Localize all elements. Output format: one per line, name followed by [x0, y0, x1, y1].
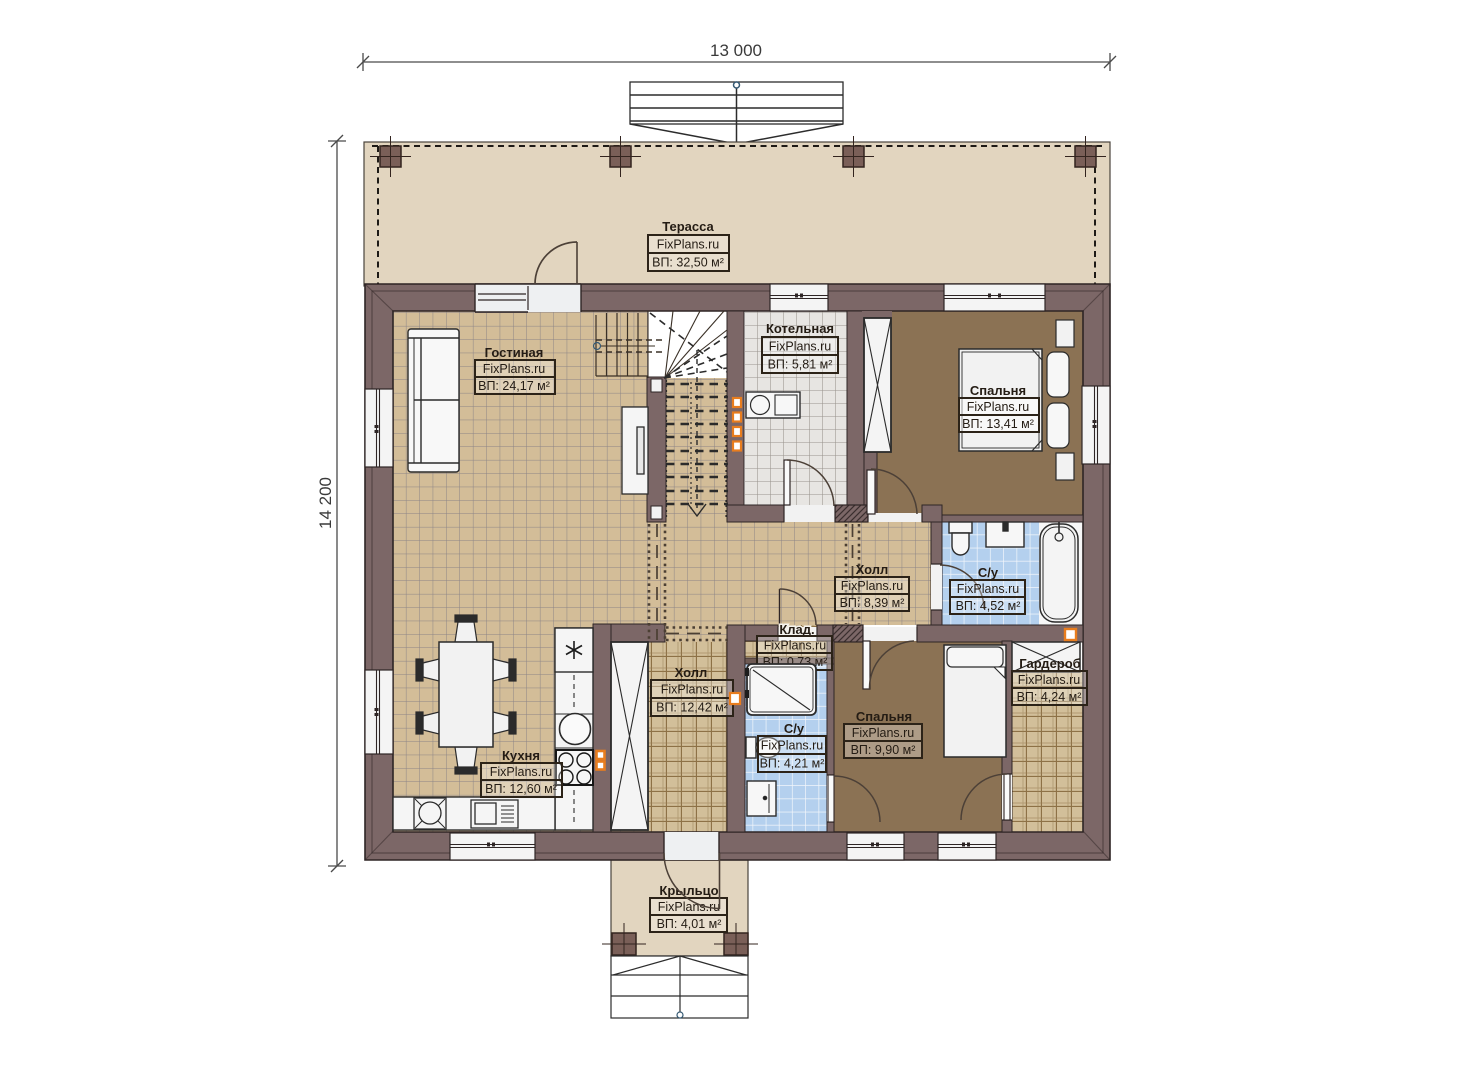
svg-text:ВП: 4,21 м²: ВП: 4,21 м² — [760, 757, 825, 771]
svg-text:Котельная: Котельная — [766, 321, 834, 336]
svg-text:14 200: 14 200 — [316, 477, 335, 529]
svg-text:Спальня: Спальня — [856, 709, 912, 724]
svg-text:Холл: Холл — [856, 562, 889, 577]
svg-text:ВП: 8,39 м²: ВП: 8,39 м² — [840, 596, 905, 610]
svg-text:С/у: С/у — [978, 565, 999, 580]
svg-text:ВП: 9,90 м²: ВП: 9,90 м² — [851, 743, 916, 757]
svg-text:С/у: С/у — [784, 721, 805, 736]
svg-text:Спальня: Спальня — [970, 383, 1026, 398]
svg-text:FixPlans.ru: FixPlans.ru — [483, 362, 546, 376]
svg-text:FixPlans.ru: FixPlans.ru — [1018, 673, 1081, 687]
svg-text:ВП: 4,52 м²: ВП: 4,52 м² — [956, 599, 1021, 613]
svg-text:FixPlans.ru: FixPlans.ru — [658, 900, 721, 914]
svg-text:Гардероб: Гардероб — [1019, 656, 1080, 671]
svg-text:FixPlans.ru: FixPlans.ru — [957, 582, 1020, 596]
svg-text:Крыльцо: Крыльцо — [659, 883, 718, 898]
svg-text:FixPlans.ru: FixPlans.ru — [841, 579, 904, 593]
svg-text:FixPlans.ru: FixPlans.ru — [657, 238, 720, 252]
svg-text:ВП: 4,24 м²: ВП: 4,24 м² — [1017, 690, 1082, 704]
svg-text:Клад.: Клад. — [779, 622, 814, 637]
svg-text:ВП: 5,81 м²: ВП: 5,81 м² — [768, 358, 833, 372]
svg-text:Кухня: Кухня — [502, 748, 540, 763]
svg-text:FixPlans.ru: FixPlans.ru — [967, 400, 1030, 414]
svg-text:FixPlans.ru: FixPlans.ru — [769, 340, 832, 354]
svg-text:Холл: Холл — [675, 665, 708, 680]
svg-text:FixPlans.ru: FixPlans.ru — [661, 683, 724, 697]
svg-text:Гостиная: Гостиная — [485, 345, 544, 360]
svg-text:FixPlans.ru: FixPlans.ru — [490, 765, 553, 779]
svg-text:ВП: 12,60 м²: ВП: 12,60 м² — [485, 782, 557, 796]
svg-text:ВП: 12,42 м²: ВП: 12,42 м² — [656, 701, 728, 715]
svg-text:ВП: 13,41 м²: ВП: 13,41 м² — [962, 417, 1034, 431]
svg-text:ВП: 24,17 м²: ВП: 24,17 м² — [478, 379, 550, 393]
svg-text:FixPlans.ru: FixPlans.ru — [764, 639, 827, 653]
svg-text:ВП: 32,50 м²: ВП: 32,50 м² — [652, 256, 724, 270]
svg-text:ВП: 4,01 м²: ВП: 4,01 м² — [657, 917, 722, 931]
svg-text:FixPlans.ru: FixPlans.ru — [852, 726, 915, 740]
svg-text:13 000: 13 000 — [710, 41, 762, 60]
svg-text:Терасса: Терасса — [662, 219, 714, 234]
svg-text:FixPlans.ru: FixPlans.ru — [761, 739, 824, 753]
